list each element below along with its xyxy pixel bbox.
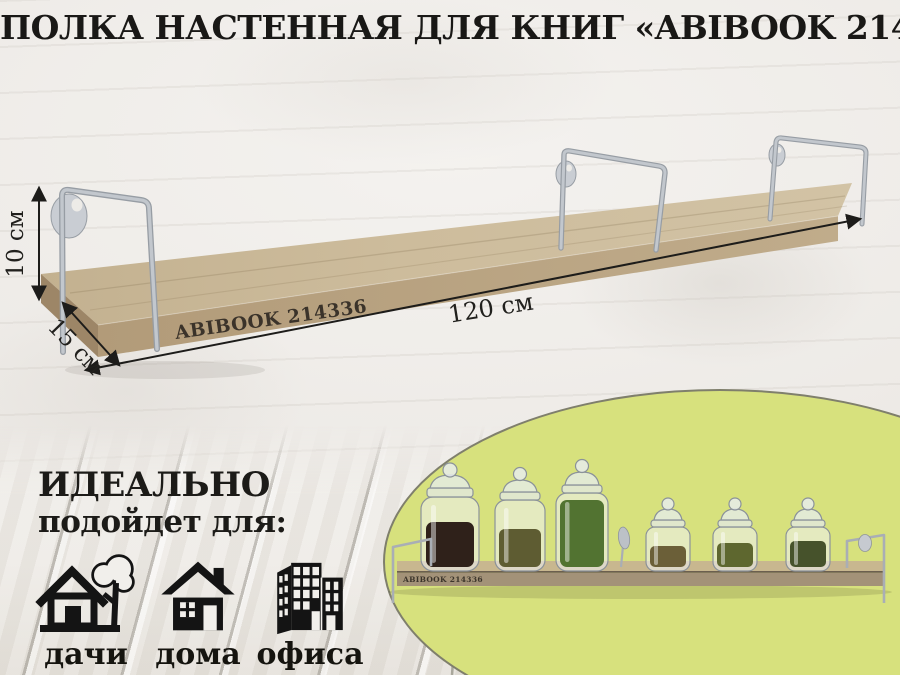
ideal-heading-line1: ИДЕАЛЬНО <box>38 466 286 504</box>
page-title: ПОЛКА НАСТЕННАЯ ДЛЯ КНИГ «ABIBOOK 214336… <box>0 8 900 47</box>
photo-shelf-shadow <box>388 585 892 599</box>
shelf-board: ABIBOOK 214336 <box>41 183 852 357</box>
photo-shelf-brand-label: ABIBOOK 214336 <box>402 575 483 584</box>
use-label: дома <box>155 637 241 672</box>
mount-hole <box>72 199 83 212</box>
use-case-dacha: дачи <box>26 549 146 672</box>
photo-mount-disc <box>859 535 872 552</box>
office-building-icon <box>265 553 355 635</box>
use-case-home: дома <box>148 557 248 672</box>
product-banner: { "title": "ПОЛКА НАСТЕННАЯ ДЛЯ КНИГ «AB… <box>0 0 900 675</box>
inset-photo-ellipse: ABIBOOK 214336 <box>384 390 900 675</box>
wall-mount-disc <box>51 194 87 238</box>
use-case-office: офиса <box>256 553 364 672</box>
country-house-with-tree-icon <box>34 549 138 635</box>
ideal-for-section: ИДЕАЛЬНО подойдет для: <box>38 466 286 540</box>
house-icon <box>159 557 237 635</box>
mount-hole <box>566 165 572 172</box>
ideal-heading-line2: подойдет для: <box>38 504 286 540</box>
use-label: офиса <box>256 637 363 672</box>
use-label: дачи <box>44 637 128 672</box>
height-dimension-label: 10 см <box>3 210 29 277</box>
